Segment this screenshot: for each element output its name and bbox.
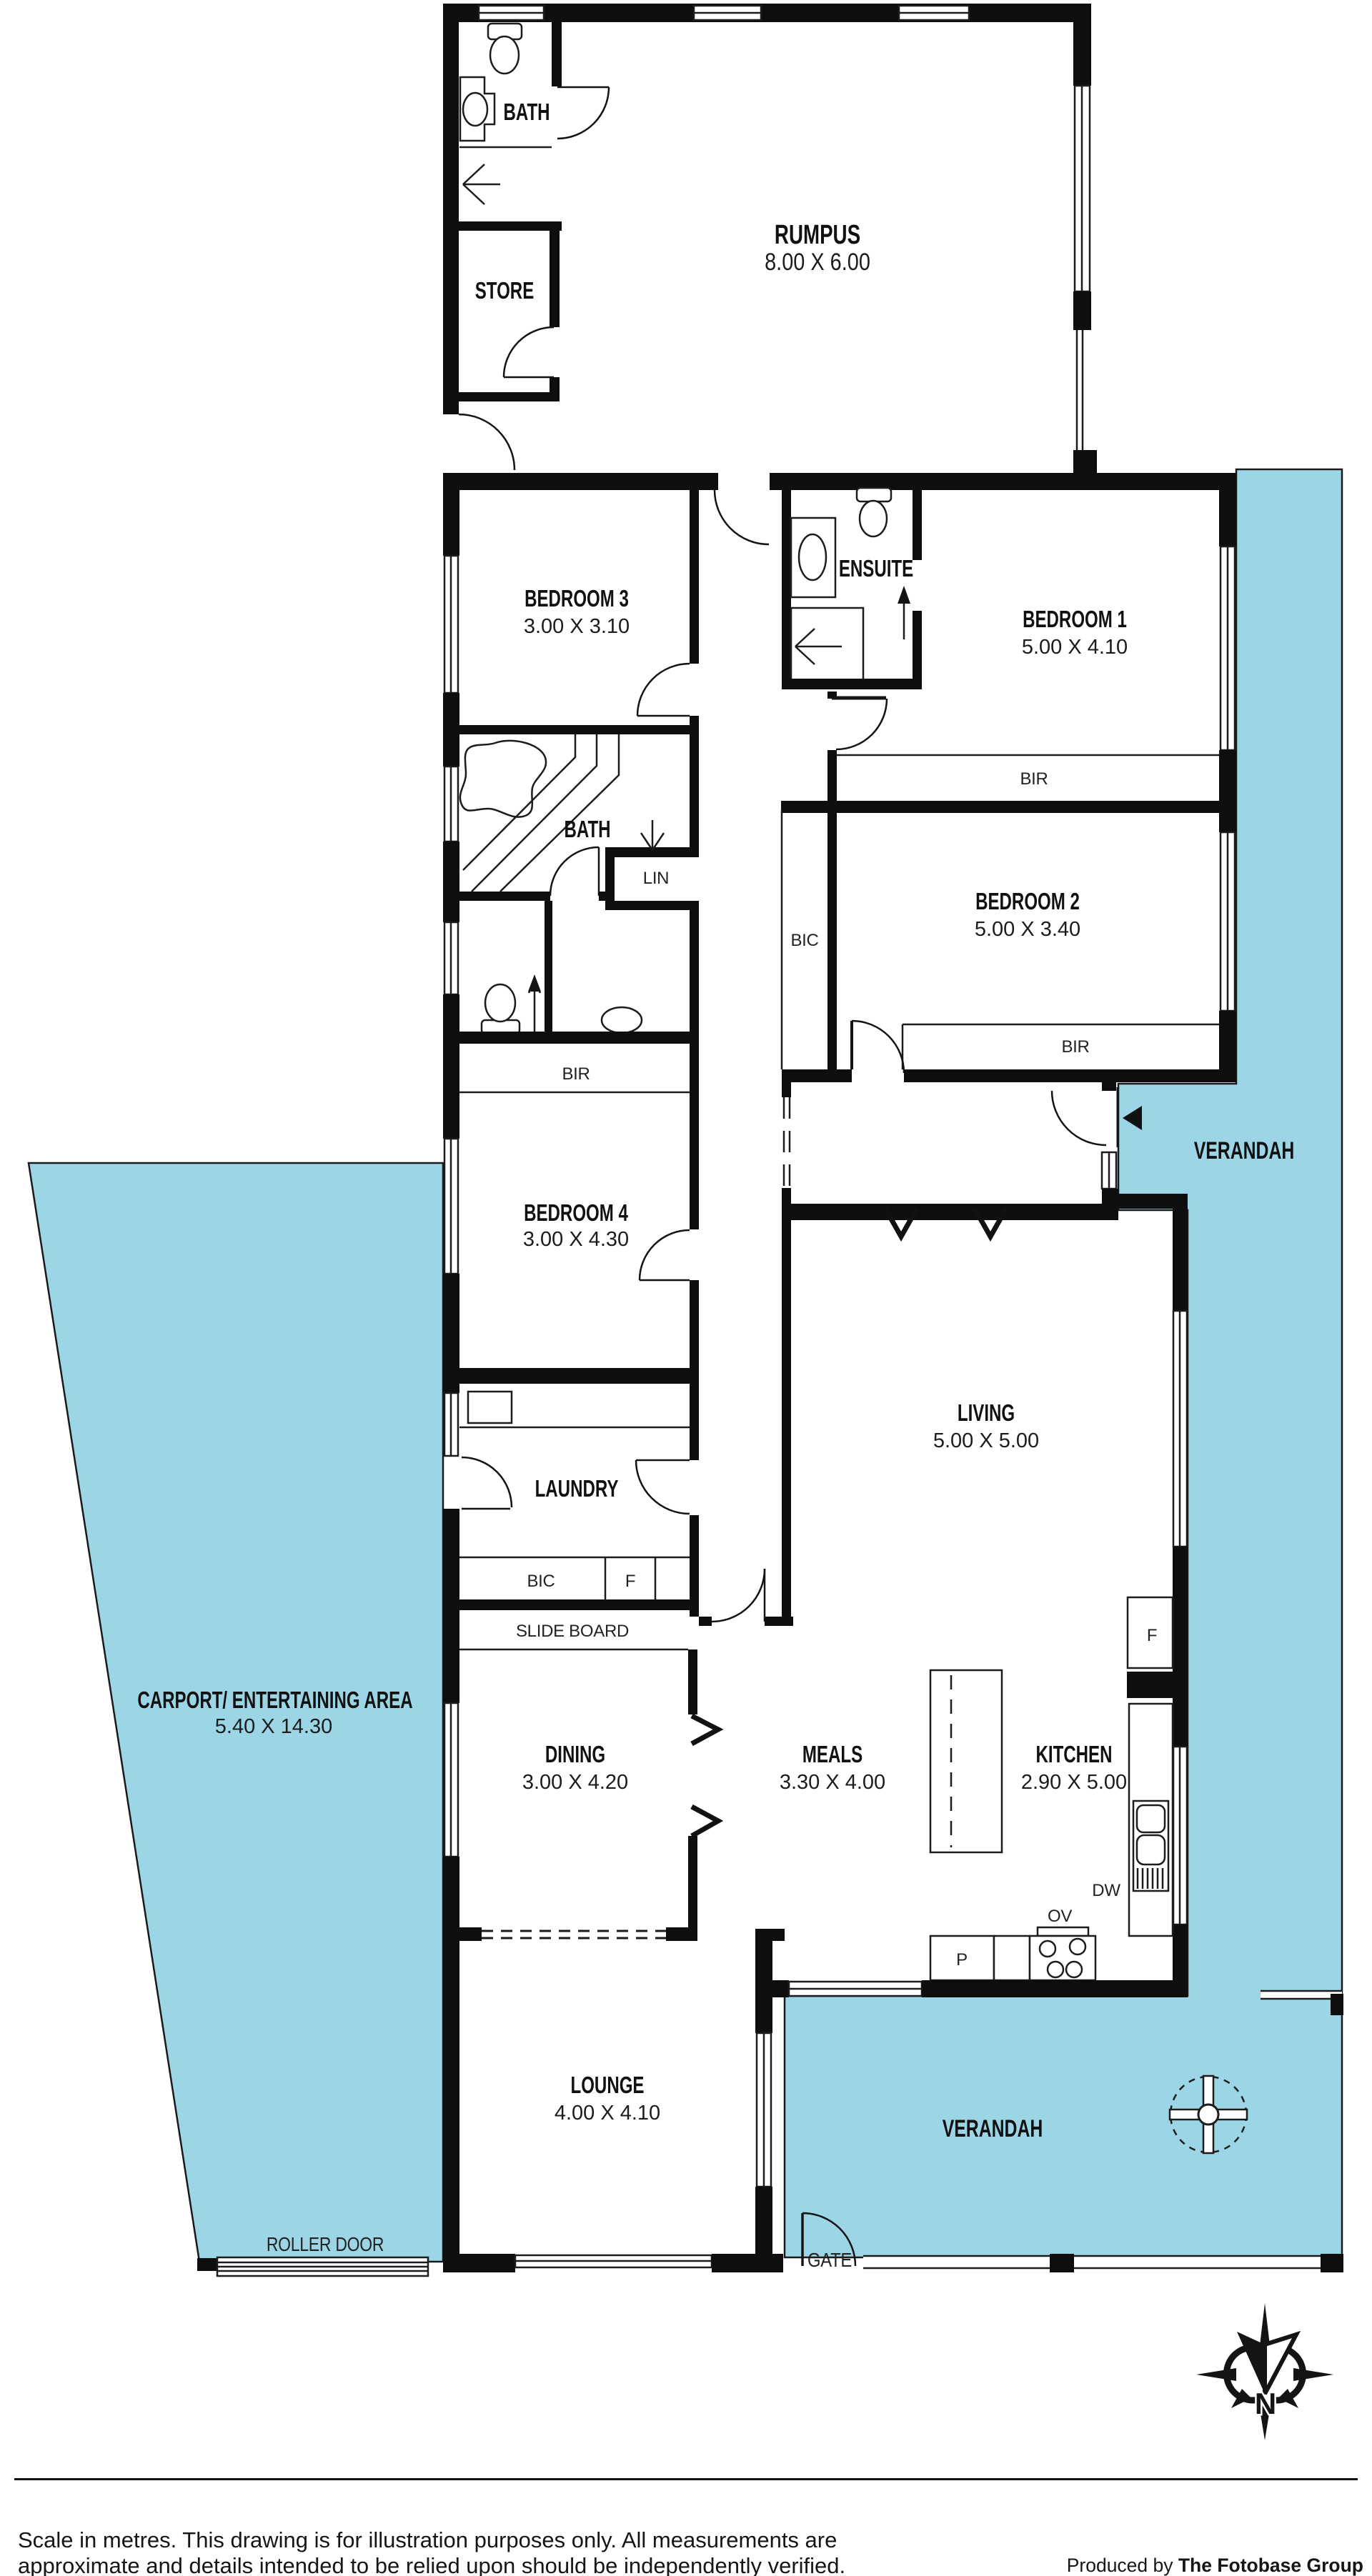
svg-text:VERANDAH: VERANDAH <box>943 2115 1043 2142</box>
svg-text:OV: OV <box>1048 1907 1072 1926</box>
svg-text:3.00 X 4.20: 3.00 X 4.20 <box>522 1771 628 1794</box>
svg-text:GATE: GATE <box>807 2248 852 2271</box>
svg-text:LIN: LIN <box>643 869 669 888</box>
svg-text:DINING: DINING <box>545 1742 605 1768</box>
svg-text:BIC: BIC <box>790 931 818 950</box>
svg-text:Scale in metres. This drawing: Scale in metres. This drawing is for ill… <box>18 2527 837 2552</box>
svg-text:BATH: BATH <box>564 817 610 843</box>
svg-text:BEDROOM 4: BEDROOM 4 <box>524 1200 628 1227</box>
svg-text:BIR: BIR <box>1020 769 1048 789</box>
svg-text:LAUNDRY: LAUNDRY <box>535 1476 619 1502</box>
svg-text:5.00 X 5.00: 5.00 X 5.00 <box>933 1429 1039 1452</box>
svg-text:KITCHEN: KITCHEN <box>1035 1742 1112 1768</box>
svg-text:BIC: BIC <box>527 1572 555 1591</box>
svg-text:BEDROOM 3: BEDROOM 3 <box>525 586 629 612</box>
svg-text:DW: DW <box>1092 1881 1120 1900</box>
svg-text:N: N <box>1255 2387 1276 2420</box>
svg-text:LIVING: LIVING <box>958 1400 1015 1427</box>
svg-text:BIR: BIR <box>562 1064 590 1084</box>
svg-text:3.00 X 3.10: 3.00 X 3.10 <box>524 615 630 638</box>
svg-text:approximate and details intend: approximate and details intended to be r… <box>18 2553 845 2576</box>
svg-text:BEDROOM 1: BEDROOM 1 <box>1023 606 1127 633</box>
svg-text:BIR: BIR <box>1061 1037 1089 1057</box>
svg-text:BATH: BATH <box>503 99 550 126</box>
svg-text:5.00 X 4.10: 5.00 X 4.10 <box>1022 636 1128 659</box>
svg-text:LOUNGE: LOUNGE <box>570 2072 644 2099</box>
svg-text:2.90 X 5.00: 2.90 X 5.00 <box>1021 1771 1127 1794</box>
svg-text:BEDROOM 2: BEDROOM 2 <box>975 889 1080 915</box>
svg-text:4.00 X 4.10: 4.00 X 4.10 <box>555 2102 660 2125</box>
svg-text:F: F <box>625 1572 635 1591</box>
svg-text:ROLLER DOOR: ROLLER DOOR <box>267 2234 384 2256</box>
svg-text:VERANDAH: VERANDAH <box>1194 1137 1295 1164</box>
svg-text:MEALS: MEALS <box>802 1742 863 1768</box>
svg-text:5.40 X 14.30: 5.40 X 14.30 <box>215 1715 332 1738</box>
svg-text:P: P <box>956 1950 968 1970</box>
svg-text:SLIDE BOARD: SLIDE BOARD <box>516 1622 629 1641</box>
svg-text:3.30 X 4.00: 3.30 X 4.00 <box>780 1771 885 1794</box>
svg-text:Produced by The Fotobase Group: Produced by The Fotobase Group <box>1067 2555 1363 2576</box>
svg-text:5.00 X 3.40: 5.00 X 3.40 <box>975 918 1080 941</box>
svg-text:STORE: STORE <box>475 278 535 304</box>
svg-text:8.00 X 6.00: 8.00 X 6.00 <box>765 248 870 276</box>
svg-text:RUMPUS: RUMPUS <box>775 220 860 250</box>
svg-text:ENSUITE: ENSUITE <box>839 556 913 582</box>
svg-text:3.00 X 4.30: 3.00 X 4.30 <box>523 1228 629 1251</box>
svg-text:F: F <box>1147 1626 1157 1645</box>
svg-text:CARPORT/ ENTERTAINING AREA: CARPORT/ ENTERTAINING AREA <box>137 1687 412 1714</box>
